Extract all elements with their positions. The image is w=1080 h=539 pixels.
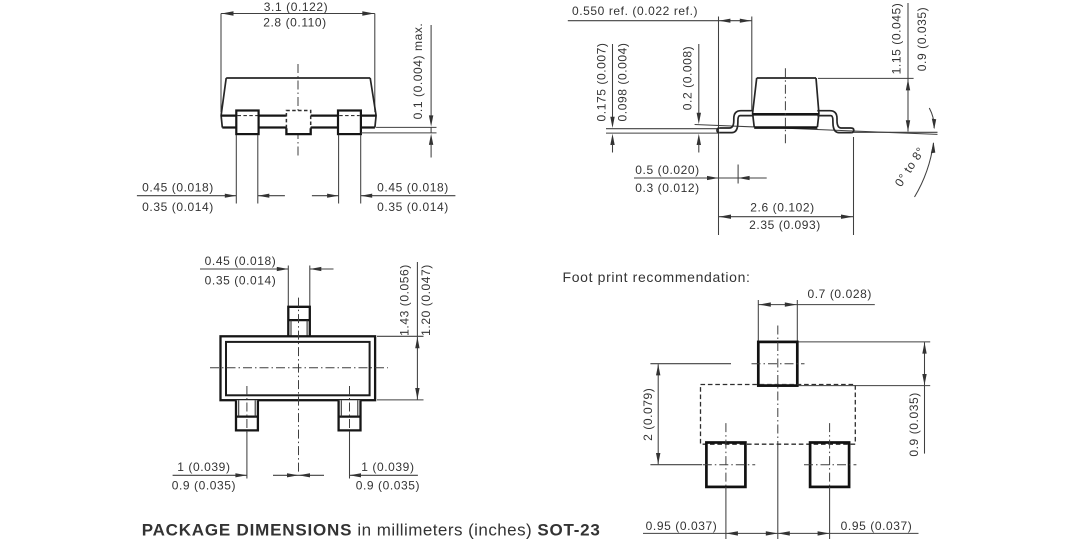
svg-text:3.1 (0.122): 3.1 (0.122) — [264, 0, 328, 14]
svg-text:0.35 (0.014): 0.35 (0.014) — [142, 200, 214, 214]
svg-text:0.9 (0.035): 0.9 (0.035) — [172, 478, 236, 492]
svg-text:1.20 (0.047): 1.20 (0.047) — [419, 264, 433, 336]
svg-text:0.45 (0.018): 0.45 (0.018) — [205, 254, 277, 268]
svg-text:0.95 (0.037): 0.95 (0.037) — [841, 519, 913, 533]
svg-text:2 (0.079): 2 (0.079) — [641, 388, 655, 441]
svg-text:0.5 (0.020): 0.5 (0.020) — [635, 163, 699, 177]
svg-text:0.9 (0.035): 0.9 (0.035) — [356, 478, 420, 492]
svg-text:PACKAGE DIMENSIONS in millimet: PACKAGE DIMENSIONS in millimeters (inche… — [142, 520, 601, 539]
svg-text:0.45 (0.018): 0.45 (0.018) — [142, 180, 214, 194]
svg-text:0.9 (0.035): 0.9 (0.035) — [907, 392, 921, 456]
svg-text:2.6 (0.102): 2.6 (0.102) — [750, 201, 814, 215]
svg-text:0.35 (0.014): 0.35 (0.014) — [205, 273, 277, 287]
svg-text:0.35 (0.014): 0.35 (0.014) — [377, 200, 449, 214]
svg-text:0.1 (0.004) max.: 0.1 (0.004) max. — [411, 23, 425, 120]
svg-text:0.45 (0.018): 0.45 (0.018) — [377, 180, 449, 194]
svg-text:0.2 (0.008): 0.2 (0.008) — [681, 46, 695, 110]
svg-text:0.550 ref. (0.022 ref.): 0.550 ref. (0.022 ref.) — [572, 4, 698, 18]
svg-text:1.43 (0.056): 1.43 (0.056) — [397, 264, 411, 336]
svg-text:0.3 (0.012): 0.3 (0.012) — [635, 181, 699, 195]
svg-text:0.098 (0.004): 0.098 (0.004) — [616, 43, 630, 122]
svg-text:2.8 (0.110): 2.8 (0.110) — [263, 16, 327, 30]
svg-text:0.9 (0.035): 0.9 (0.035) — [915, 7, 929, 71]
svg-text:1.15 (0.045): 1.15 (0.045) — [890, 3, 904, 75]
svg-text:Foot print recommendation:: Foot print recommendation: — [563, 269, 751, 285]
svg-text:1 (0.039): 1 (0.039) — [361, 460, 414, 474]
svg-text:0.95 (0.037): 0.95 (0.037) — [646, 519, 718, 533]
svg-text:0.7 (0.028): 0.7 (0.028) — [807, 287, 871, 301]
svg-text:2.35 (0.093): 2.35 (0.093) — [749, 218, 821, 232]
svg-text:0.175 (0.007): 0.175 (0.007) — [595, 43, 609, 122]
svg-text:1 (0.039): 1 (0.039) — [177, 460, 230, 474]
